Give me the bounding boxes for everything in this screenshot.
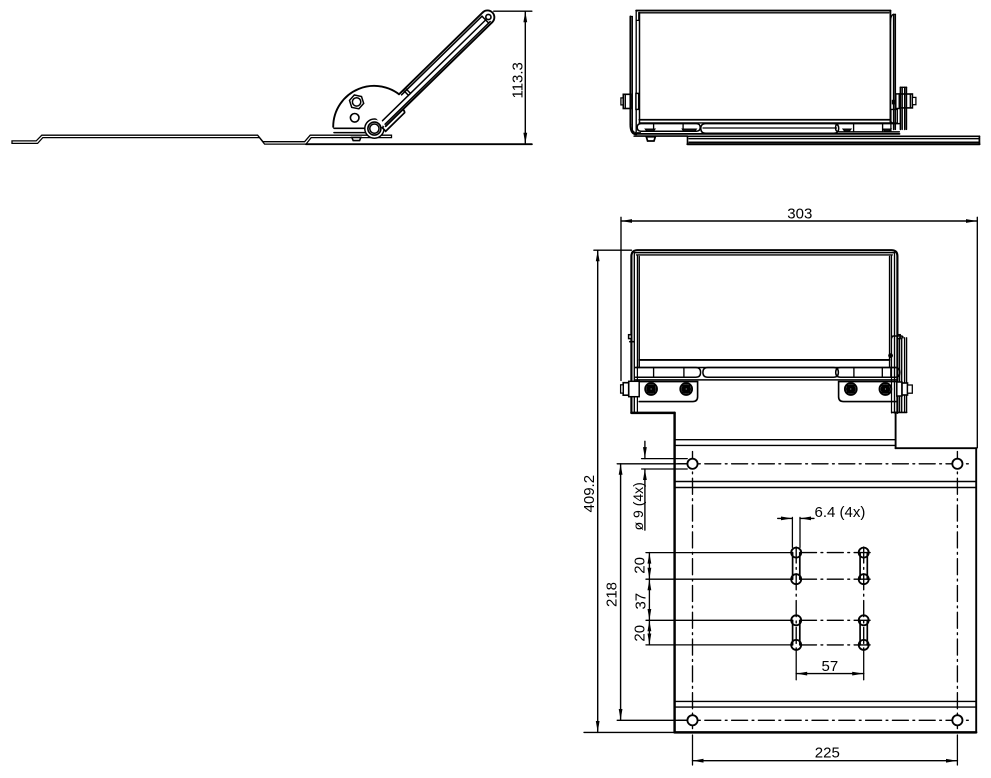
svg-text:6.4 (4x): 6.4 (4x) bbox=[815, 504, 866, 521]
svg-text:409.2: 409.2 bbox=[581, 475, 598, 513]
svg-text:303: 303 bbox=[787, 206, 812, 223]
svg-text:ø 9 (4x): ø 9 (4x) bbox=[630, 482, 646, 530]
svg-text:218: 218 bbox=[604, 582, 621, 607]
svg-text:225: 225 bbox=[815, 745, 840, 762]
svg-text:57: 57 bbox=[822, 658, 839, 675]
svg-text:37: 37 bbox=[632, 593, 649, 610]
svg-text:20: 20 bbox=[632, 625, 649, 642]
svg-text:20: 20 bbox=[632, 557, 649, 574]
svg-text:113.3: 113.3 bbox=[509, 62, 526, 98]
